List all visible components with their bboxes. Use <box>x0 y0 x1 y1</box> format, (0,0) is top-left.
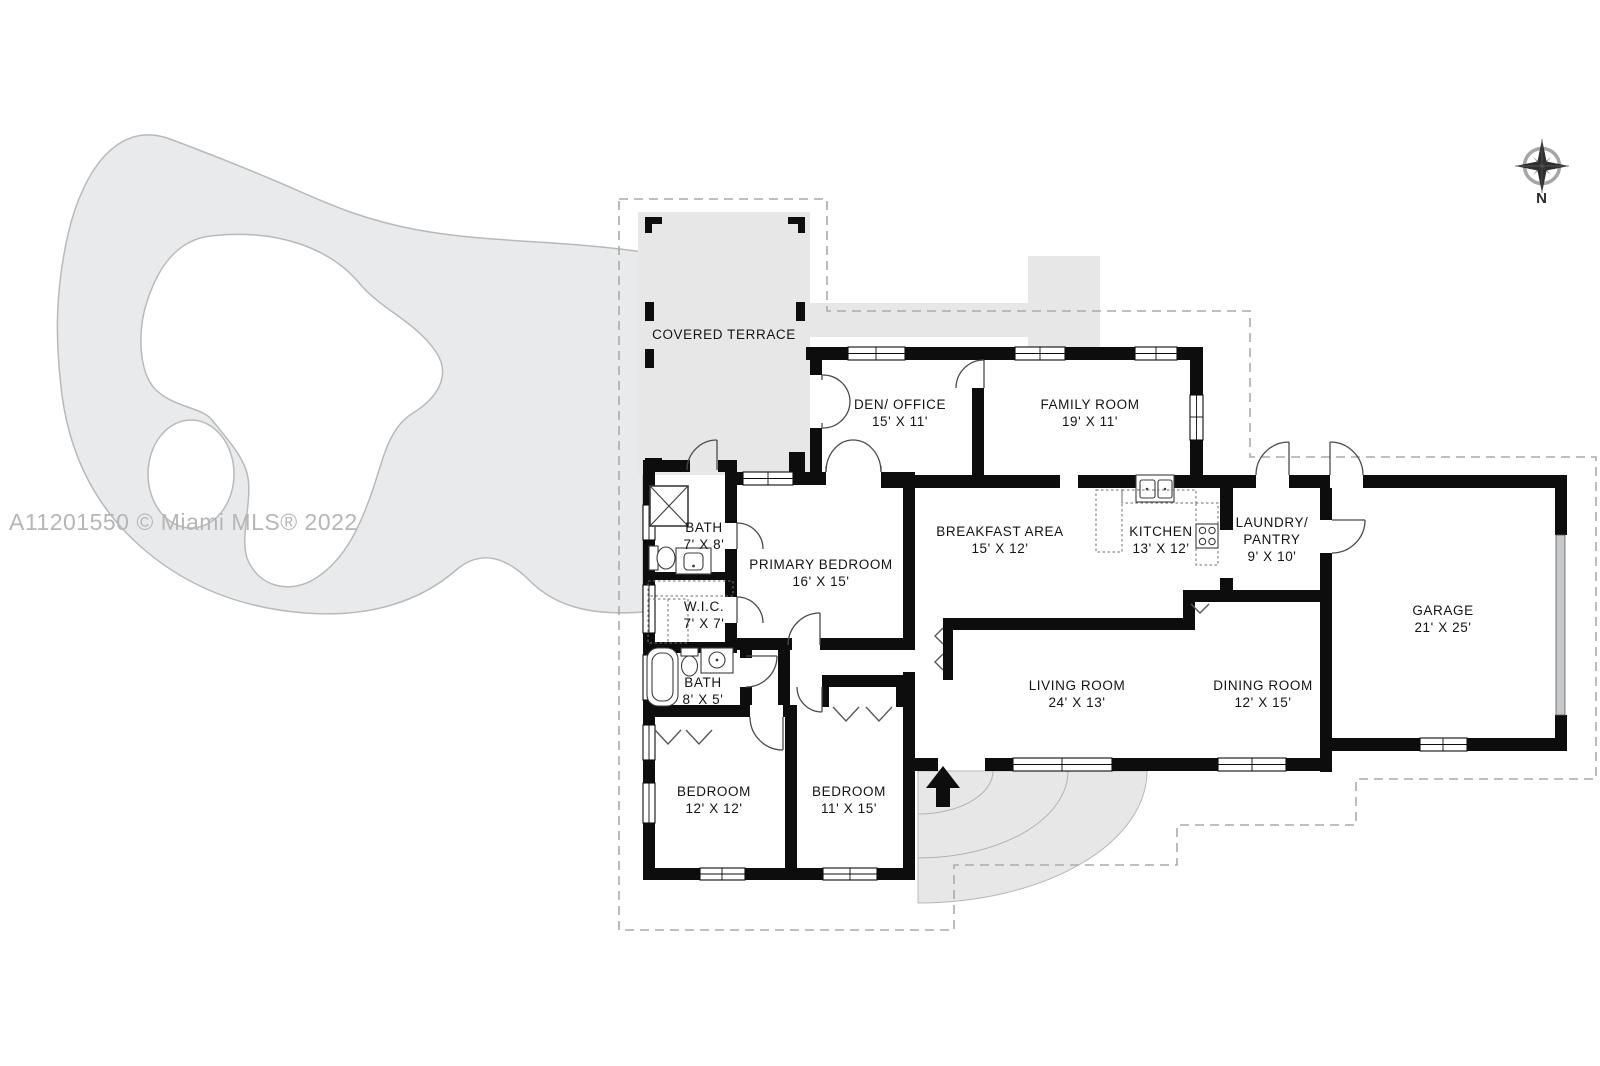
room-label-line: 24' X 13' <box>1029 694 1126 711</box>
room-label-kitchen: KITCHEN13' X 12' <box>1129 523 1192 557</box>
room-label-line: 9' X 10' <box>1236 548 1309 565</box>
room-label-line: BATH <box>684 519 725 536</box>
room-label-line: PANTRY <box>1236 531 1309 548</box>
room-label-line: DINING ROOM <box>1213 677 1313 694</box>
room-label-line: BATH <box>683 674 724 691</box>
room-label-line: PRIMARY BEDROOM <box>749 556 893 573</box>
compass-rose-icon <box>1515 139 1569 193</box>
room-label-line: 12' X 12' <box>677 800 751 817</box>
room-label-laundry-pantry: LAUNDRY/PANTRY9' X 10' <box>1236 514 1309 565</box>
room-label-dining-room: DINING ROOM12' X 15' <box>1213 677 1313 711</box>
bathtub-icon <box>647 648 678 706</box>
room-label-wic: W.I.C.7' X 7' <box>684 598 725 632</box>
room-label-line: BEDROOM <box>677 783 751 800</box>
room-label-line: 16' X 15' <box>749 573 893 590</box>
room-label-line: 15' X 11' <box>854 413 946 430</box>
room-label-line: COVERED TERRACE <box>652 326 796 343</box>
room-label-garage: GARAGE21' X 25' <box>1412 602 1473 636</box>
room-label-line: BREAKFAST AREA <box>936 523 1063 540</box>
floor-plan-page: COVERED TERRACEDEN/ OFFICE15' X 11'FAMIL… <box>0 0 1600 1066</box>
room-label-bedroom-11x15: BEDROOM11' X 15' <box>812 783 886 817</box>
room-label-line: DEN/ OFFICE <box>854 396 946 413</box>
stove-icon <box>1196 524 1218 548</box>
toilet-icon <box>649 546 675 570</box>
kitchen-sink-icon <box>1136 475 1174 502</box>
garage-door-icon <box>1556 535 1565 715</box>
room-label-line: BEDROOM <box>812 783 886 800</box>
room-label-line: 8' X 5' <box>683 691 724 708</box>
room-label-line: W.I.C. <box>684 598 725 615</box>
room-label-line: 11' X 15' <box>812 800 886 817</box>
room-label-line: 7' X 8' <box>684 536 725 553</box>
room-label-line: 12' X 15' <box>1213 694 1313 711</box>
room-label-bedroom-12x12: BEDROOM12' X 12' <box>677 783 751 817</box>
room-label-line: 15' X 12' <box>936 540 1063 557</box>
room-label-line: LAUNDRY/ <box>1236 514 1309 531</box>
toilet-icon <box>681 648 698 676</box>
room-label-line: KITCHEN <box>1129 523 1192 540</box>
room-label-line: 7' X 7' <box>684 615 725 632</box>
room-label-line: 19' X 11' <box>1040 413 1139 430</box>
room-label-line: 13' X 12' <box>1129 540 1192 557</box>
mls-watermark: A11201550 © Miami MLS® 2022 <box>9 509 358 536</box>
room-label-line: LIVING ROOM <box>1029 677 1126 694</box>
pool-deck-shape <box>57 135 643 614</box>
shower-icon <box>650 486 688 526</box>
room-label-line: 21' X 25' <box>1412 619 1473 636</box>
room-label-family-room: FAMILY ROOM19' X 11' <box>1040 396 1139 430</box>
room-label-primary-bedroom: PRIMARY BEDROOM16' X 15' <box>749 556 893 590</box>
room-label-bath-8x5: BATH8' X 5' <box>683 674 724 708</box>
sink-vanity-icon <box>701 648 733 673</box>
compass-north-label: N <box>1528 190 1556 207</box>
room-label-line: GARAGE <box>1412 602 1473 619</box>
opening-trim-icon <box>935 628 943 670</box>
room-label-living-room: LIVING ROOM24' X 13' <box>1029 677 1126 711</box>
room-label-bath-7x8: BATH7' X 8' <box>684 519 725 553</box>
room-label-den-office: DEN/ OFFICE15' X 11' <box>854 396 946 430</box>
room-label-breakfast-area: BREAKFAST AREA15' X 12' <box>936 523 1063 557</box>
room-label-line: FAMILY ROOM <box>1040 396 1139 413</box>
room-label-covered-terrace: COVERED TERRACE <box>652 326 796 343</box>
